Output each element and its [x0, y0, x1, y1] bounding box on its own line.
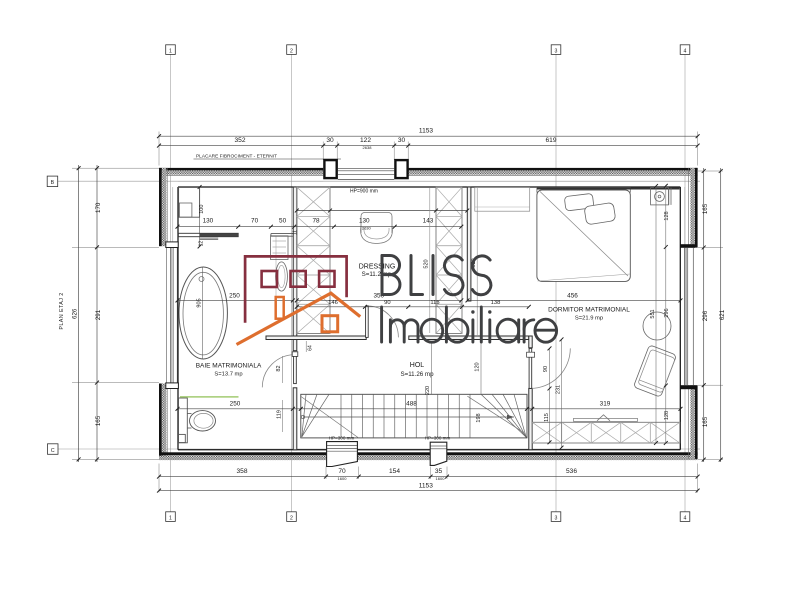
svg-text:1600: 1600 [338, 476, 348, 481]
svg-text:78: 78 [312, 218, 320, 225]
svg-text:250: 250 [230, 401, 241, 408]
svg-text:1: 1 [169, 515, 172, 521]
svg-text:2630: 2630 [362, 226, 372, 231]
svg-text:154: 154 [389, 468, 400, 475]
svg-text:1153: 1153 [419, 482, 434, 489]
svg-text:50: 50 [279, 218, 287, 225]
svg-text:2: 2 [290, 515, 293, 521]
svg-text:4: 4 [684, 48, 687, 54]
svg-text:70: 70 [338, 468, 346, 475]
svg-text:122: 122 [360, 137, 371, 144]
svg-text:HP=300 mm: HP=300 mm [329, 436, 355, 441]
svg-text:621: 621 [719, 309, 726, 320]
svg-text:90: 90 [543, 366, 549, 372]
svg-text:HOL: HOL [410, 362, 425, 369]
svg-text:319: 319 [600, 401, 611, 408]
svg-text:358: 358 [236, 468, 247, 475]
svg-text:352: 352 [234, 137, 245, 144]
svg-text:S=11.26 mp: S=11.26 mp [400, 371, 434, 378]
svg-text:220: 220 [425, 386, 431, 395]
svg-text:551: 551 [650, 309, 656, 318]
svg-text:128: 128 [664, 411, 670, 420]
svg-text:130: 130 [203, 218, 214, 225]
svg-text:30: 30 [398, 137, 406, 144]
svg-text:1: 1 [169, 48, 172, 54]
svg-text:4: 4 [684, 515, 687, 521]
svg-text:S=21.9 mp: S=21.9 mp [575, 316, 603, 322]
svg-text:11: 11 [293, 230, 299, 235]
svg-text:C: C [51, 448, 55, 454]
svg-text:3: 3 [555, 48, 558, 54]
svg-text:119: 119 [276, 410, 282, 419]
svg-text:143: 143 [423, 218, 434, 225]
svg-text:231: 231 [555, 385, 561, 394]
svg-text:64: 64 [308, 345, 314, 351]
svg-text:BAIE MATRIMONIALA: BAIE MATRIMONIALA [196, 363, 262, 370]
svg-text:1600: 1600 [436, 476, 446, 481]
svg-text:70: 70 [251, 218, 259, 225]
svg-text:520: 520 [423, 259, 429, 268]
svg-text:12: 12 [199, 241, 205, 247]
svg-text:905: 905 [197, 298, 203, 307]
svg-text:536: 536 [566, 468, 577, 475]
svg-text:296: 296 [664, 308, 670, 317]
svg-text:PLACARE FIBROCIMENT - ETERNIT: PLACARE FIBROCIMENT - ETERNIT [196, 153, 277, 158]
svg-text:S=13.7 mp: S=13.7 mp [214, 372, 242, 378]
svg-text:291: 291 [95, 309, 102, 320]
svg-text:138: 138 [491, 300, 501, 306]
svg-text:90: 90 [384, 300, 390, 306]
svg-text:250: 250 [229, 293, 240, 300]
svg-text:130: 130 [359, 218, 370, 225]
svg-text:35: 35 [435, 468, 443, 475]
svg-text:626: 626 [71, 308, 78, 319]
svg-text:HP=900 mm: HP=900 mm [350, 189, 378, 195]
svg-text:B: B [51, 180, 55, 186]
svg-text:PLAN ETAJ 2: PLAN ETAJ 2 [59, 292, 65, 329]
svg-text:DORMITOR MATRIMONIAL: DORMITOR MATRIMONIAL [548, 306, 630, 313]
svg-text:198: 198 [476, 413, 482, 422]
svg-text:165: 165 [702, 203, 709, 214]
svg-text:82: 82 [276, 365, 282, 371]
svg-text:120: 120 [474, 362, 480, 371]
svg-text:488: 488 [406, 401, 417, 408]
svg-text:3: 3 [555, 515, 558, 521]
svg-text:30: 30 [326, 137, 334, 144]
svg-text:128: 128 [664, 211, 670, 220]
svg-text:2638: 2638 [363, 145, 373, 150]
svg-text:DRESSING: DRESSING [359, 263, 396, 270]
svg-text:115: 115 [430, 300, 439, 306]
svg-text:1153: 1153 [419, 128, 434, 135]
svg-text:456: 456 [567, 293, 578, 300]
svg-text:170: 170 [95, 202, 102, 213]
svg-text:146: 146 [328, 300, 338, 306]
svg-text:165: 165 [95, 415, 102, 426]
svg-text:115: 115 [544, 413, 550, 422]
svg-text:2: 2 [290, 48, 293, 54]
svg-text:619: 619 [545, 137, 556, 144]
svg-text:296: 296 [702, 310, 709, 321]
svg-text:100: 100 [199, 205, 205, 214]
svg-text:165: 165 [702, 416, 709, 427]
svg-text:HP=300 mm: HP=300 mm [425, 436, 451, 441]
